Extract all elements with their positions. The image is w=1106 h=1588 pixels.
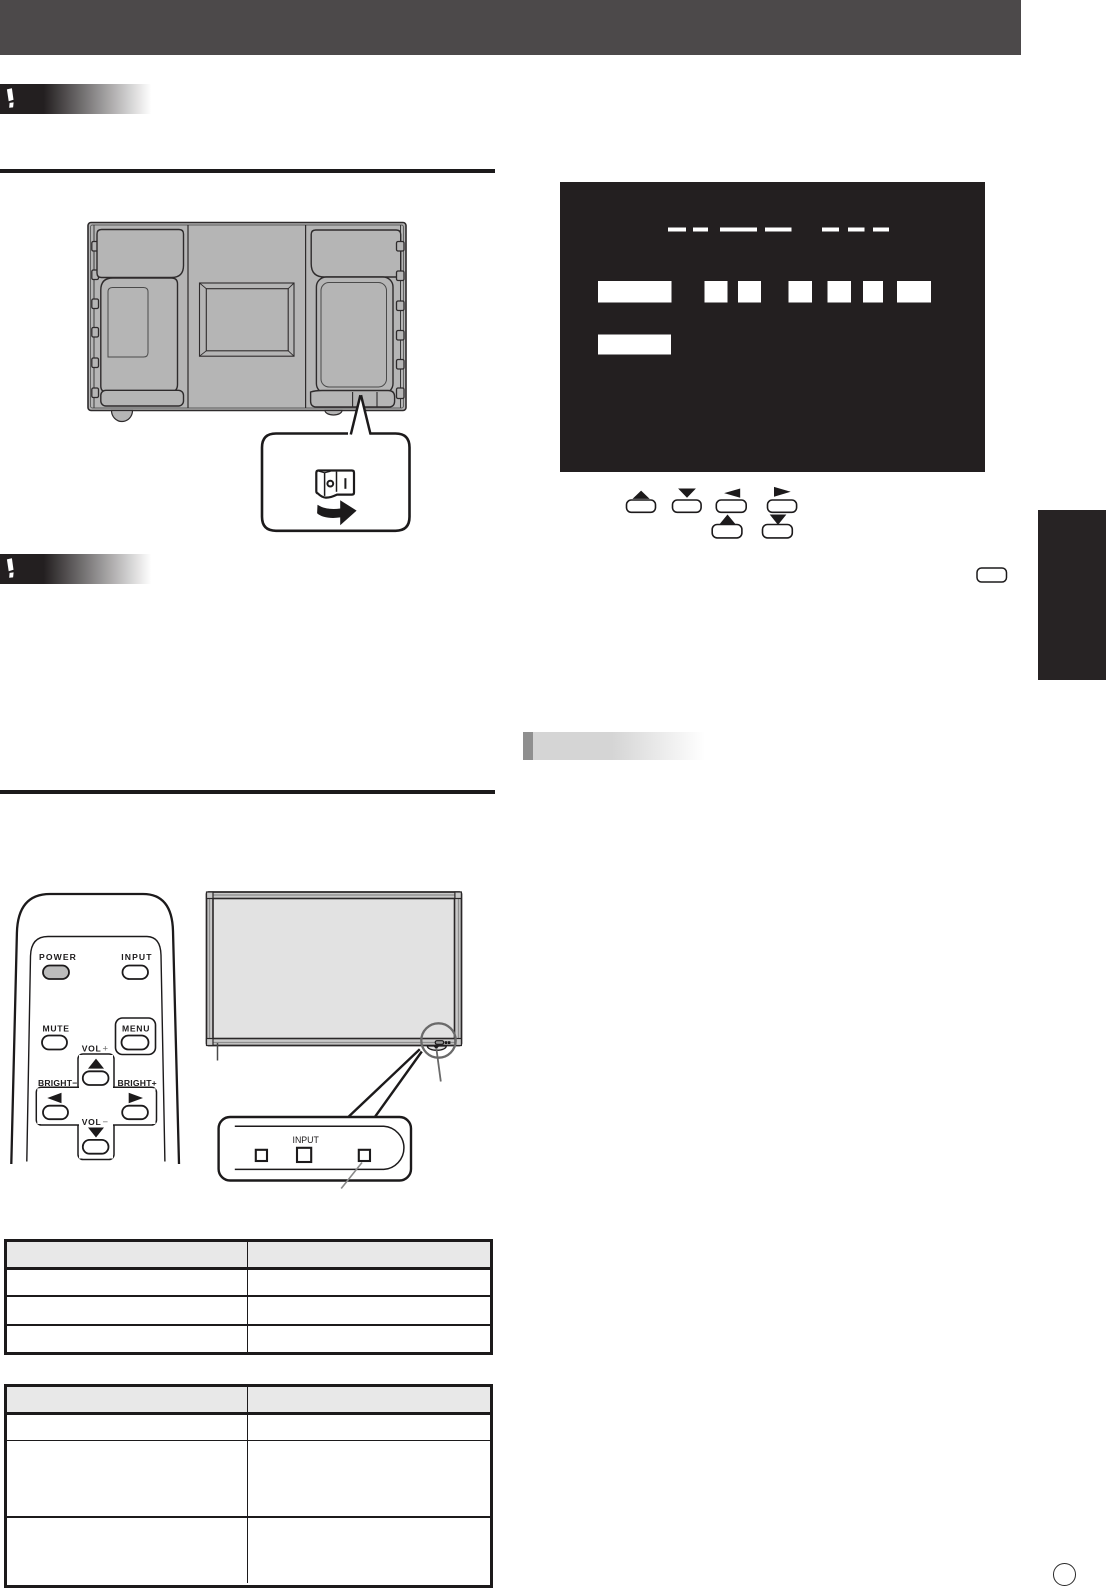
svg-text:INPUT: INPUT <box>121 952 152 962</box>
svg-text:POWER: POWER <box>39 952 77 962</box>
svg-text:−: − <box>103 1117 109 1128</box>
svg-text:BRIGHT+: BRIGHT+ <box>118 1078 157 1088</box>
svg-text:BRIGHT−: BRIGHT− <box>38 1078 77 1088</box>
svg-text:+: + <box>103 1043 109 1054</box>
svg-text:MUTE: MUTE <box>43 1023 70 1033</box>
svg-text:MENU: MENU <box>122 1023 150 1033</box>
svg-text:VOL: VOL <box>82 1117 102 1127</box>
svg-text:INPUT: INPUT <box>293 1135 320 1145</box>
svg-text:VOL: VOL <box>82 1043 102 1053</box>
